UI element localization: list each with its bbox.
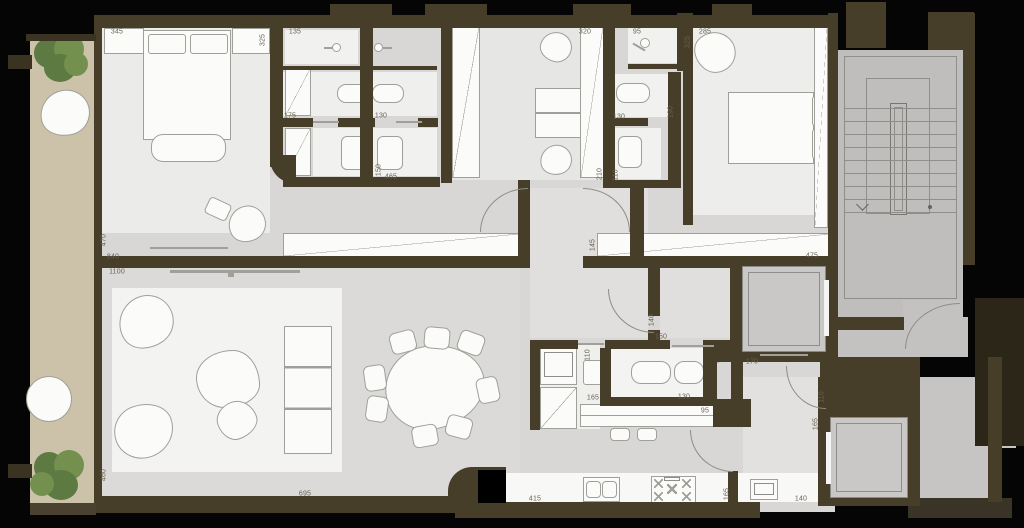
dimension-label: 170 [746,359,758,366]
wall-segment [425,4,487,16]
wall-segment [283,66,361,70]
wall-segment [95,15,835,28]
dimension-label: 325 [685,36,692,48]
wall-segment [360,15,373,125]
balcony-slab [30,503,96,515]
burner-icon [682,492,691,501]
sink-basin [602,481,617,498]
door-leaf [578,343,604,345]
dining-chair [364,395,389,424]
dimension-label: 165 [813,418,820,430]
dimension-label: 150 [376,164,383,176]
burner-icon [654,492,663,501]
stair-step-line [845,121,956,122]
wall-segment [95,496,466,513]
dimension-label: 130 [375,113,387,120]
dimension-label: 140 [795,496,807,503]
wall-segment [630,180,644,268]
dimension-label: 1100 [109,269,125,276]
stair-step-line [845,147,956,148]
wall-segment [95,256,520,268]
dimension-label: 345 [111,29,123,36]
dressing-island [535,88,581,138]
dimension-label: 695 [299,491,311,498]
toilet-icon [616,83,650,103]
wall-segment [360,127,373,185]
tv-console [170,270,300,273]
door-leaf [396,121,422,123]
stair-dot [928,205,932,209]
door-leaf [672,345,714,347]
laundry-cabinet [540,387,577,429]
bed-pillow [148,34,186,54]
elevator-car-inner [836,423,902,492]
wall-segment [373,66,437,70]
dimension-label: 145 [590,239,597,251]
dimension-label: 95 [633,29,641,36]
wall-segment [713,399,751,427]
wall-segment [270,15,283,167]
dimension-label: 135 [289,29,301,36]
door-leaf [313,121,339,123]
wall-segment [838,317,904,330]
dimension-label: 210 [597,168,604,180]
dimension-label: 130 [678,394,690,401]
wall-segment [441,13,452,183]
coffee-table [196,350,260,408]
dimension-label: 140 [649,314,656,326]
dining-chair [410,423,439,449]
wall-segment [606,397,717,406]
bench [151,134,226,162]
tap-stem [324,47,333,49]
wall-segment [605,340,670,349]
dimension-label: 110 [819,391,826,403]
dimension-label: 95 [701,408,709,415]
dimension-label: 175 [284,113,296,120]
bidet-icon [674,361,704,384]
corridor-wardrobe [283,233,520,257]
sofa [284,326,332,454]
burner-icon [667,484,677,494]
wall-segment [668,72,681,182]
dining-chair [362,364,387,393]
plant [30,472,54,496]
slab-tab [8,464,32,478]
wall-segment [603,13,615,180]
dimension-label: 165 [724,488,731,500]
slab-tab [8,55,32,69]
stair-step-line [845,173,956,174]
wall-segment [988,357,1002,502]
dimension-label: 470 [101,234,108,246]
bidet-icon [372,84,404,103]
wall-tap-icon [332,43,341,52]
wall-segment [963,13,975,265]
dimension-label: 190 [668,106,675,118]
toilet-icon [631,361,671,384]
elevator-door [826,432,831,484]
wardrobe [452,26,480,178]
wardrobe [580,26,604,178]
stove-grill [664,477,680,481]
bed-pillow [190,34,228,54]
dimension-label: 465 [385,174,397,181]
dimension-label: 130 [613,114,625,121]
dimension-label: 150 [655,334,667,341]
sink-basin [586,481,601,498]
kitchen-island [580,404,715,427]
wardrobe [814,26,828,228]
dimension-label: 325 [260,34,267,46]
plant [64,52,88,76]
floor-plan: 3453251351751301504653209532528513019021… [0,0,1024,528]
elevator-car-inner [748,272,820,346]
stool [610,428,630,441]
balcony-edge [26,34,96,41]
dining-chair [423,326,451,350]
dimension-label: 285 [699,29,711,36]
curtain-line [150,247,228,249]
elevator-door [824,280,829,336]
wall-segment [712,4,752,16]
dimension-label: 460 [101,469,108,481]
linen-closet [285,68,311,116]
wall-notch-void [478,470,506,503]
stair-newel-inner [894,107,903,211]
door-leaf [760,354,808,356]
wall-tap-icon [374,43,383,52]
dimension-label: 110 [613,169,620,181]
dimension-label: 415 [529,496,541,503]
washer-drum [544,352,573,377]
hall-elevator-floor [660,268,731,338]
bed [728,92,814,164]
dimension-label: 110 [585,349,592,361]
stool [637,428,657,441]
wall-segment [703,340,717,400]
burner-icon [682,479,691,488]
dimension-label: 165 [587,395,599,402]
wall-segment [846,2,886,48]
stair-step-line [845,212,956,213]
dimension-label: 320 [579,29,591,36]
tv-stand [228,273,234,277]
tap-stem [383,47,392,49]
burner-icon [654,479,663,488]
stair-step-line [845,199,956,200]
balcony-table [26,376,72,422]
stair-step-line [845,160,956,161]
dimension-label: 840 [107,254,119,261]
dimension-label: 475 [806,253,818,260]
stair-step-line [845,186,956,187]
stair-step-line [845,108,956,109]
wall-segment [628,64,684,69]
washbasin-icon [618,136,642,168]
stair-step-line [845,134,956,135]
wall-segment [573,4,631,16]
wall-segment [530,340,540,430]
sink-basin [754,483,774,495]
wall-segment [338,118,375,127]
